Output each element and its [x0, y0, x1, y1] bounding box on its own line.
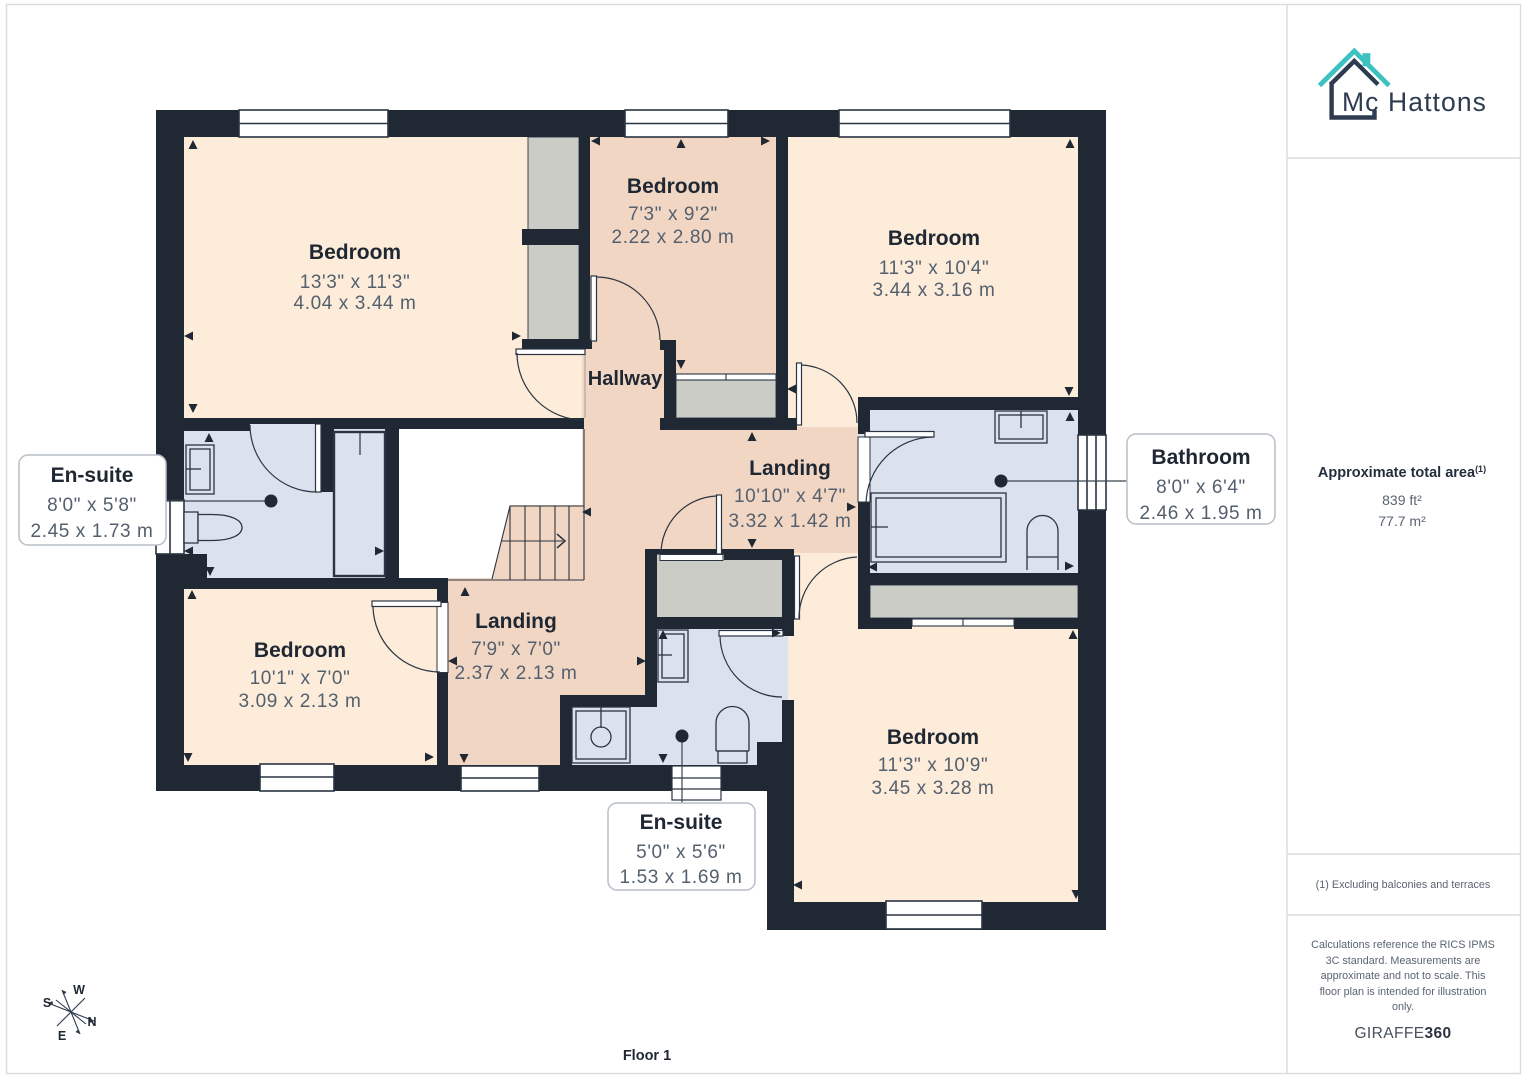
- svg-text:2.37 x 2.13 m: 2.37 x 2.13 m: [455, 663, 578, 684]
- svg-text:5'0" x 5'6": 5'0" x 5'6": [636, 842, 726, 863]
- svg-text:En-suite: En-suite: [640, 811, 723, 834]
- svg-text:GIRAFFE360: GIRAFFE360: [1354, 1025, 1451, 1042]
- svg-text:Approximate total area(1): Approximate total area(1): [1318, 464, 1486, 481]
- svg-text:3C standard. Measurements are: 3C standard. Measurements are: [1326, 955, 1481, 967]
- svg-text:only.: only.: [1392, 1001, 1414, 1013]
- svg-text:7'9" x 7'0": 7'9" x 7'0": [471, 639, 561, 660]
- svg-text:Bedroom: Bedroom: [627, 175, 719, 198]
- svg-text:(1) Excluding balconies and te: (1) Excluding balconies and terraces: [1316, 879, 1491, 891]
- svg-text:E: E: [58, 1029, 66, 1043]
- svg-text:En-suite: En-suite: [51, 464, 134, 487]
- svg-text:Bathroom: Bathroom: [1151, 446, 1250, 469]
- svg-text:N: N: [87, 1015, 96, 1029]
- svg-text:10'1" x 7'0": 10'1" x 7'0": [250, 668, 351, 689]
- svg-text:3.45 x 3.28 m: 3.45 x 3.28 m: [872, 778, 995, 799]
- svg-text:3.09 x 2.13 m: 3.09 x 2.13 m: [239, 691, 362, 712]
- svg-text:Floor 1: Floor 1: [623, 1048, 671, 1064]
- svg-text:floor plan is intended for ill: floor plan is intended for illustration: [1320, 986, 1487, 998]
- svg-text:3.32 x 1.42 m: 3.32 x 1.42 m: [729, 511, 852, 532]
- svg-text:11'3" x 10'9": 11'3" x 10'9": [878, 755, 989, 776]
- svg-text:W: W: [73, 983, 85, 997]
- svg-text:11'3" x 10'4": 11'3" x 10'4": [879, 258, 990, 279]
- svg-text:4.04 x 3.44 m: 4.04 x 3.44 m: [294, 293, 417, 314]
- svg-text:8'0" x 6'4": 8'0" x 6'4": [1156, 477, 1246, 498]
- svg-text:7'3" x 9'2": 7'3" x 9'2": [628, 204, 718, 225]
- svg-text:2.46 x 1.95 m: 2.46 x 1.95 m: [1140, 503, 1263, 524]
- svg-text:Mc Hattons: Mc Hattons: [1342, 87, 1487, 117]
- svg-text:1.53 x 1.69 m: 1.53 x 1.69 m: [620, 867, 743, 888]
- svg-text:13'3" x 11'3": 13'3" x 11'3": [300, 272, 411, 293]
- svg-text:839 ft²: 839 ft²: [1382, 492, 1422, 508]
- svg-text:Calculations reference the RIC: Calculations reference the RICS IPMS: [1311, 939, 1495, 951]
- svg-text:S: S: [43, 996, 51, 1010]
- svg-text:Hallway: Hallway: [588, 368, 663, 390]
- svg-text:Landing: Landing: [475, 610, 557, 633]
- svg-text:Bedroom: Bedroom: [888, 227, 980, 250]
- svg-text:Bedroom: Bedroom: [254, 639, 346, 662]
- svg-text:Landing: Landing: [749, 457, 831, 480]
- svg-text:2.22 x 2.80 m: 2.22 x 2.80 m: [612, 227, 735, 248]
- svg-text:77.7 m²: 77.7 m²: [1378, 513, 1426, 529]
- svg-text:Bedroom: Bedroom: [887, 726, 979, 749]
- svg-text:3.44 x 3.16 m: 3.44 x 3.16 m: [873, 280, 996, 301]
- svg-text:8'0" x 5'8": 8'0" x 5'8": [47, 495, 137, 516]
- svg-text:2.45 x 1.73 m: 2.45 x 1.73 m: [31, 521, 154, 542]
- svg-text:approximate and not to scale.: approximate and not to scale. This: [1321, 970, 1486, 982]
- svg-text:10'10" x 4'7": 10'10" x 4'7": [734, 486, 846, 507]
- svg-text:Bedroom: Bedroom: [309, 241, 401, 264]
